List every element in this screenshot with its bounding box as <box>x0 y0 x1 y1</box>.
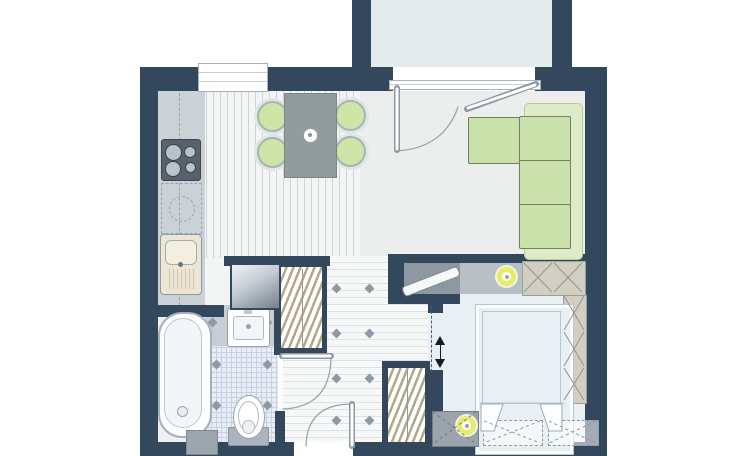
bathtub <box>158 312 212 438</box>
balcony-floor <box>371 0 552 67</box>
sink-faucet <box>178 262 183 267</box>
floor-plan <box>0 0 730 456</box>
burner-small-2 <box>185 162 196 173</box>
sliding-door-arrow-up <box>435 336 445 345</box>
hall-wardrobe-upper <box>274 261 327 355</box>
lamp-dot <box>465 424 469 428</box>
underbed-storage-1 <box>483 420 543 446</box>
washbasin-faucet <box>244 310 252 314</box>
burner-small-1 <box>184 146 196 158</box>
sliding-door-arrow-shaft <box>440 345 441 360</box>
bathtub-drain <box>177 406 188 417</box>
dining-chair-top-right <box>335 100 366 131</box>
toilet-drain <box>242 420 255 434</box>
burner-large-1 <box>165 144 182 161</box>
planned-appliance-circle <box>169 196 195 222</box>
bed-inner-line <box>482 311 561 404</box>
bedside-lamp <box>455 414 478 437</box>
fridge <box>230 263 281 310</box>
balcony-wall-right <box>552 0 572 67</box>
sliding-door-arrow-down <box>435 359 445 368</box>
kitchen-window <box>198 63 268 92</box>
living-room-lamp <box>495 265 518 288</box>
table-centerpiece <box>303 128 318 143</box>
hanger-rail-upper <box>281 267 322 348</box>
planned-appliance-dashed <box>161 183 202 234</box>
toilet-bowl <box>233 395 265 439</box>
kitchen-sink <box>160 234 202 295</box>
lamp-dot <box>505 275 509 279</box>
sink-drainboard <box>166 269 195 289</box>
balcony-wall-left <box>352 0 371 67</box>
sofa-seat-2 <box>519 160 571 206</box>
sofa-seat-1 <box>519 116 571 162</box>
washbasin <box>227 308 270 347</box>
wall-left <box>140 67 158 456</box>
underbed-storage-2 <box>548 420 599 446</box>
stove <box>161 139 201 181</box>
washbasin-drain <box>246 324 251 329</box>
hanger-rail-lower <box>388 368 425 442</box>
sofa-seat-3 <box>519 204 571 249</box>
hall-wardrobe-lower <box>382 361 430 448</box>
wall-bathroom-right <box>275 411 285 442</box>
dining-chair-bottom-right <box>335 136 366 167</box>
sofa-chaise <box>468 117 523 164</box>
wall-media-bottom <box>388 293 460 304</box>
balcony-door-sill <box>389 80 541 90</box>
utility-block <box>186 430 218 455</box>
burner-large-2 <box>165 161 181 177</box>
dining-table <box>284 93 337 178</box>
storage-cabinet-top <box>522 261 586 296</box>
sliding-door-track <box>431 306 432 372</box>
